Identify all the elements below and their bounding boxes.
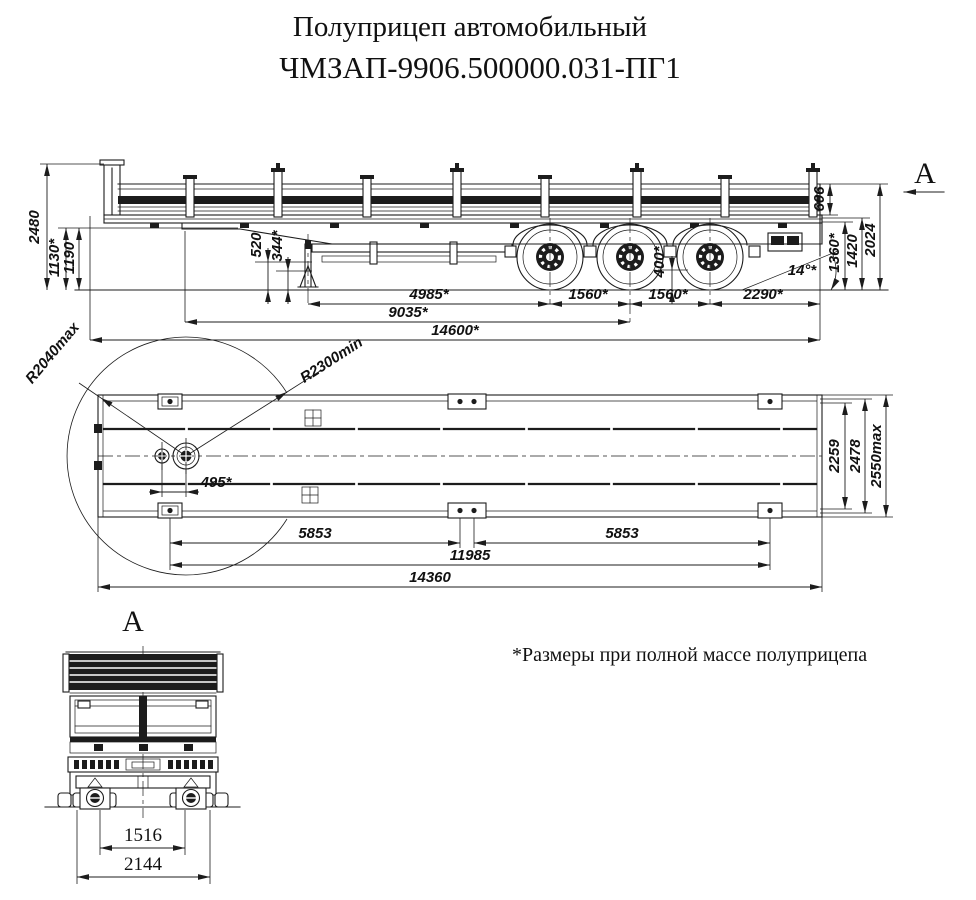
dim-rear-height-overall: 2024 xyxy=(862,223,879,258)
dim-front-swing-radius: R2040max xyxy=(22,319,83,387)
dim-width-overall: 2550max xyxy=(868,424,885,489)
radius-leader-rear xyxy=(186,392,287,456)
dim-rear-swing-radius: R2300min xyxy=(297,334,366,387)
dim-board-height: 606 xyxy=(811,186,828,212)
dim-width-frame: 2478 xyxy=(847,439,864,474)
dim-lashing-span-outer: 11985 xyxy=(450,547,491,564)
stake-posts xyxy=(183,163,820,217)
drawing-sheet: Полуприцеп автомобильный ЧМЗАП-9906.5000… xyxy=(0,0,976,900)
view-a-arrow: A xyxy=(904,157,944,192)
page-title-line1: Полуприцеп автомобильный xyxy=(293,11,647,43)
body-boards xyxy=(63,652,223,693)
page-title-line2: ЧМЗАП-9906.500000.031-ПГ1 xyxy=(279,50,680,85)
top-view: R2040max R2300min 495* 2259 2478 2550max… xyxy=(22,319,893,592)
dim-rear-overhang: 2290* xyxy=(742,286,783,303)
deck-hatch-marks xyxy=(302,410,321,503)
view-a-arrow-label: A xyxy=(914,157,936,190)
frame-rails xyxy=(312,242,512,264)
dim-axle-frame-clearance: 400* xyxy=(651,245,668,278)
lashing-brackets-top xyxy=(158,394,782,409)
dim-width-inner: 2259 xyxy=(826,439,843,474)
dim-frame-to-bogie: 9035* xyxy=(388,304,428,321)
dim-length-overall: 14600* xyxy=(431,322,480,339)
dim-track-outer: 2144 xyxy=(124,854,163,875)
dim-coupling-height-unladen: 1190 xyxy=(61,241,78,274)
dim-platform-length: 14360 xyxy=(409,569,451,586)
dim-track-inner: 1516 xyxy=(124,825,162,846)
platform-deck xyxy=(104,215,822,223)
footnote: *Размеры при полной массе полуприцепа xyxy=(512,644,867,666)
side-view: 2480 1130* 1190 520 344* 400* 4985* 1560… xyxy=(26,157,944,340)
dim-rear-frame-height: 1420 xyxy=(844,234,861,268)
trailer-drawing: Полуприцеп автомобильный ЧМЗАП-9906.5000… xyxy=(0,0,976,900)
dim-departure-angle: 14°* xyxy=(788,262,818,279)
dim-gooseneck-clearance: 520 xyxy=(248,232,265,258)
dim-axle-spacing-12: 1560* xyxy=(568,286,608,303)
dim-axle-spacing-23: 1560* xyxy=(648,286,688,303)
side-boards xyxy=(118,184,820,211)
dim-kingpin-to-axle1: 4985* xyxy=(408,286,449,303)
title-block: Полуприцеп автомобильный ЧМЗАП-9906.5000… xyxy=(279,11,680,85)
dim-kingpin-clearance: 344* xyxy=(269,229,286,261)
dim-height-overall: 2480 xyxy=(26,210,43,245)
tailgate-panel xyxy=(70,696,216,753)
dim-lashing-span-rear: 5853 xyxy=(605,525,639,542)
dim-rear-frame-height-laden: 1360* xyxy=(826,232,843,272)
lashing-brackets-bottom xyxy=(158,503,782,518)
taillight-box xyxy=(768,233,802,251)
dim-lashing-span-front: 5853 xyxy=(298,525,332,542)
dim-kingpin-hole-offset: 495* xyxy=(200,474,233,491)
front-view: A xyxy=(45,605,240,884)
front-view-label: A xyxy=(122,605,144,638)
